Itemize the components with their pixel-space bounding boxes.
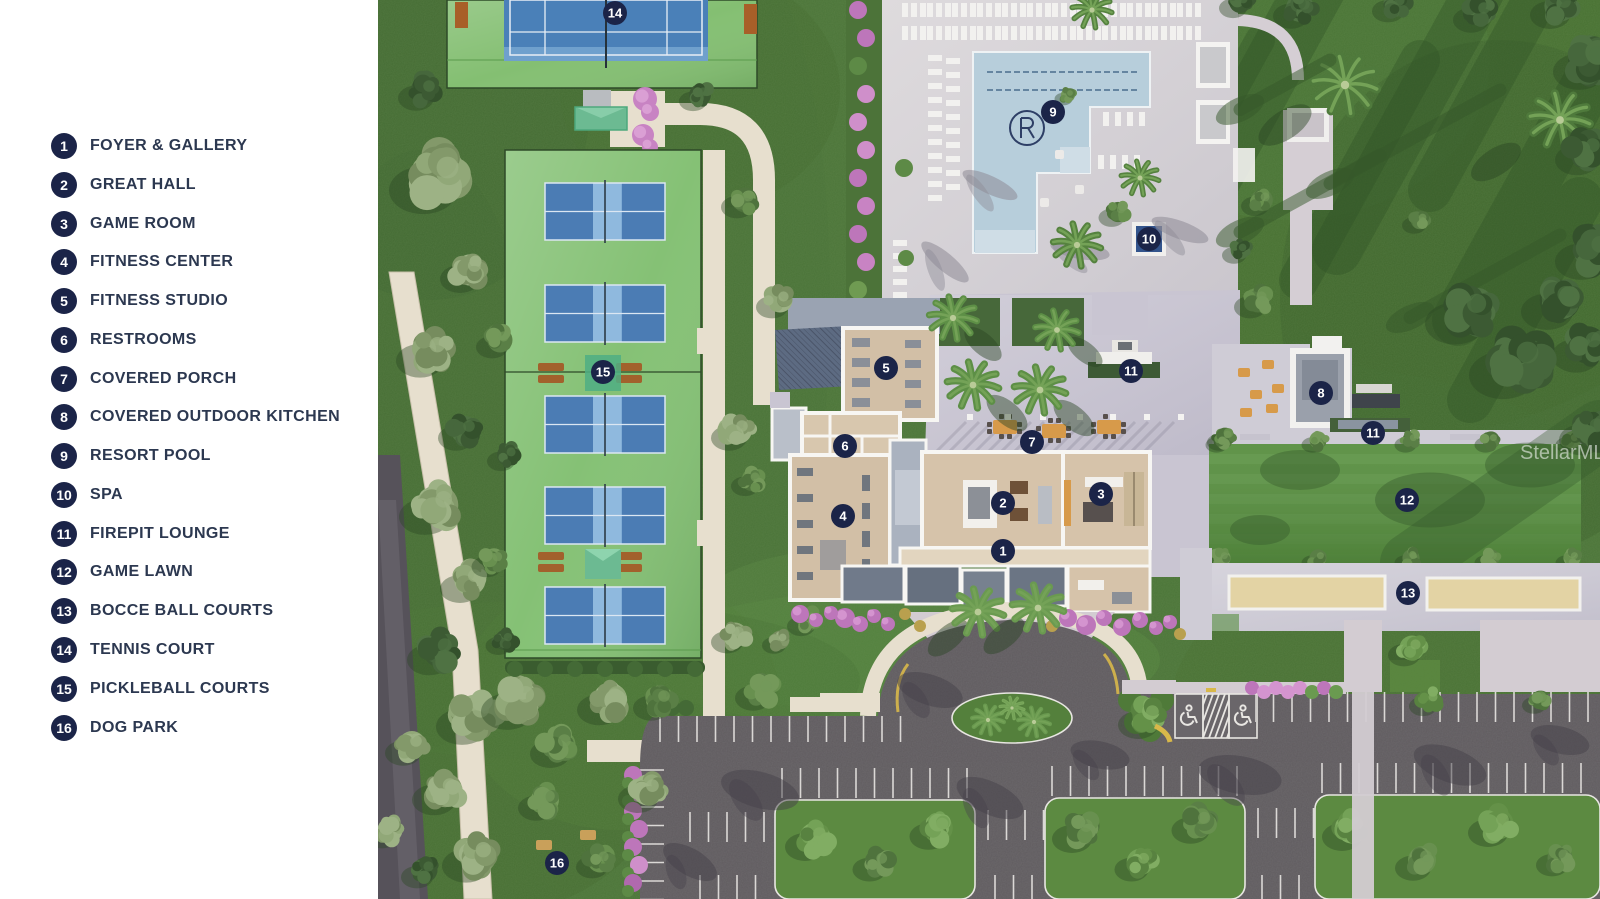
svg-text:11: 11 — [1124, 364, 1138, 379]
svg-text:13: 13 — [1401, 586, 1415, 601]
svg-text:8: 8 — [1317, 386, 1324, 401]
svg-text:6: 6 — [841, 439, 848, 454]
svg-text:2: 2 — [999, 496, 1006, 511]
svg-text:15: 15 — [596, 365, 610, 380]
svg-text:14: 14 — [608, 6, 623, 21]
svg-text:11: 11 — [1366, 426, 1380, 441]
svg-text:4: 4 — [839, 509, 847, 524]
svg-text:1: 1 — [999, 544, 1006, 559]
svg-text:5: 5 — [882, 361, 889, 376]
svg-text:9: 9 — [1049, 105, 1056, 120]
svg-text:7: 7 — [1028, 435, 1035, 450]
svg-text:16: 16 — [550, 856, 564, 871]
svg-text:StellarMLS: StellarMLS — [1520, 442, 1600, 464]
svg-text:3: 3 — [1097, 487, 1104, 502]
svg-text:10: 10 — [1142, 232, 1156, 247]
svg-text:12: 12 — [1400, 493, 1414, 508]
